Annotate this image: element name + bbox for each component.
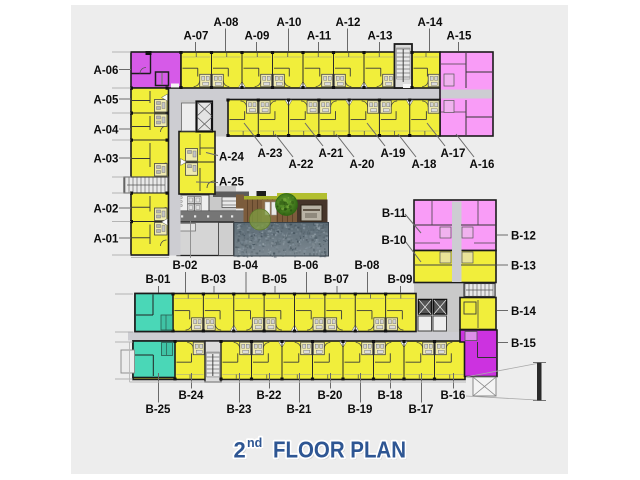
svg-text:B-22: B-22 bbox=[257, 390, 282, 402]
svg-text:B-04: B-04 bbox=[233, 260, 259, 272]
svg-text:B-01: B-01 bbox=[146, 274, 172, 286]
svg-text:A-13: A-13 bbox=[368, 31, 393, 43]
svg-text:A-21: A-21 bbox=[319, 148, 345, 160]
svg-text:B-08: B-08 bbox=[355, 260, 381, 272]
svg-text:A-23: A-23 bbox=[258, 148, 283, 160]
svg-text:A-07: A-07 bbox=[184, 31, 209, 43]
svg-text:B-20: B-20 bbox=[318, 390, 343, 402]
svg-text:A-24: A-24 bbox=[219, 152, 245, 164]
svg-text:nd: nd bbox=[247, 436, 262, 450]
svg-text:A-03: A-03 bbox=[94, 154, 119, 166]
svg-text:A-12: A-12 bbox=[336, 17, 361, 29]
svg-text:B-07: B-07 bbox=[324, 274, 349, 286]
svg-text:B-21: B-21 bbox=[287, 404, 313, 416]
svg-text:A-02: A-02 bbox=[94, 204, 119, 216]
svg-text:A-14: A-14 bbox=[418, 17, 444, 29]
svg-text:A-04: A-04 bbox=[94, 125, 120, 137]
svg-text:A-22: A-22 bbox=[289, 159, 314, 171]
svg-text:A-09: A-09 bbox=[245, 31, 270, 43]
svg-text:A-05: A-05 bbox=[94, 95, 120, 107]
svg-text:B-13: B-13 bbox=[511, 261, 536, 273]
svg-text:B-14: B-14 bbox=[511, 306, 537, 318]
svg-text:B-05: B-05 bbox=[262, 274, 288, 286]
svg-text:B-23: B-23 bbox=[227, 404, 252, 416]
svg-text:A-20: A-20 bbox=[350, 159, 375, 171]
svg-text:B-11: B-11 bbox=[382, 208, 407, 220]
svg-text:A-16: A-16 bbox=[470, 159, 495, 171]
svg-text:B-15: B-15 bbox=[511, 338, 537, 350]
svg-text:A-17: A-17 bbox=[441, 148, 466, 160]
svg-text:B-02: B-02 bbox=[173, 260, 198, 272]
svg-text:A-19: A-19 bbox=[381, 148, 406, 160]
svg-text:B-09: B-09 bbox=[388, 274, 413, 286]
svg-text:B-06: B-06 bbox=[294, 260, 319, 272]
svg-text:B-24: B-24 bbox=[179, 390, 205, 402]
svg-text:A-25: A-25 bbox=[219, 177, 245, 189]
svg-text:A-08: A-08 bbox=[214, 17, 240, 29]
svg-text:A-11: A-11 bbox=[307, 31, 332, 43]
svg-text:A-15: A-15 bbox=[447, 31, 473, 43]
svg-text:B-12: B-12 bbox=[511, 231, 536, 243]
svg-text:A-18: A-18 bbox=[412, 159, 438, 171]
svg-text:B-16: B-16 bbox=[441, 390, 466, 402]
svg-text:B-19: B-19 bbox=[348, 404, 373, 416]
svg-text:B-17: B-17 bbox=[409, 404, 434, 416]
svg-text:B-10: B-10 bbox=[382, 235, 407, 247]
svg-text:A-01: A-01 bbox=[94, 234, 120, 246]
svg-text:B-03: B-03 bbox=[201, 274, 226, 286]
svg-text:B-25: B-25 bbox=[146, 404, 172, 416]
svg-text:A-10: A-10 bbox=[277, 17, 302, 29]
svg-text:FLOOR PLAN: FLOOR PLAN bbox=[273, 437, 406, 463]
svg-text:A-06: A-06 bbox=[94, 65, 119, 77]
svg-text:2: 2 bbox=[234, 438, 246, 463]
svg-text:B-18: B-18 bbox=[378, 390, 404, 402]
